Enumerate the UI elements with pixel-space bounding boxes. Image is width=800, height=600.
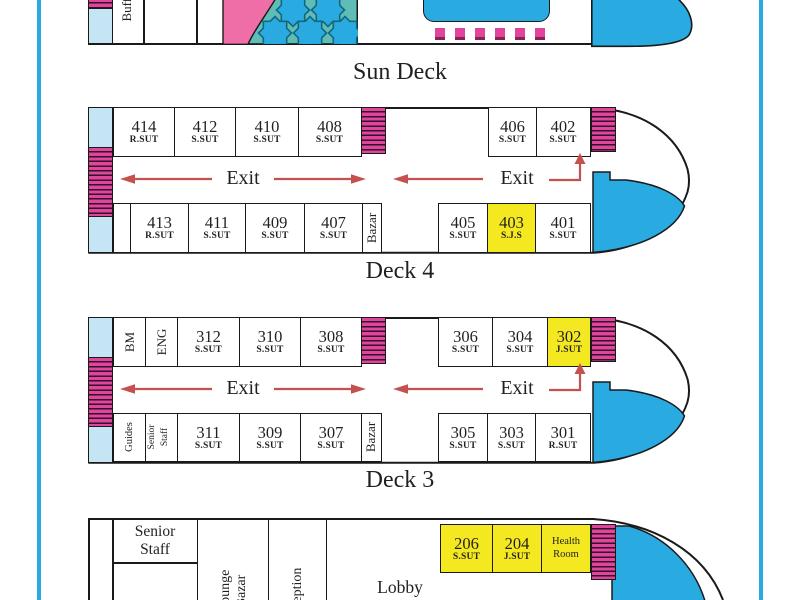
exit-bent-arrow — [549, 152, 593, 184]
exit-label: Exit — [490, 377, 544, 400]
health-room-label: Health Room — [545, 536, 587, 560]
stairs-icon — [88, 0, 113, 9]
room-407: 407 S.SUT — [304, 203, 364, 253]
deco-fin-shape — [222, 0, 278, 45]
exit-arrow-left — [120, 173, 212, 185]
senior-staff-label-line2: Staff — [158, 392, 172, 482]
room-304: 304 S.SUT — [492, 317, 549, 367]
sun-lounger-icon — [535, 28, 545, 40]
stairs-icon — [88, 147, 113, 217]
sun-deck-label: Sun Deck — [300, 59, 500, 86]
sun-lounger-icon — [455, 28, 465, 40]
room-412: 412 S.SUT — [174, 107, 237, 157]
sun-lounger-icon — [495, 28, 505, 40]
room-410: 410 S.SUT — [235, 107, 299, 157]
lounge-bazar-label-line1: Lounge — [219, 546, 233, 600]
wall-line — [113, 562, 198, 564]
room-414: 414 R.SUT — [113, 107, 175, 157]
bm-label: BM — [123, 297, 137, 387]
room-311: 311 S.SUT — [177, 413, 240, 462]
senior-staff-label: Senior Staff — [124, 523, 186, 557]
buffet-room-label: Buffet — [120, 0, 134, 50]
service-cabin — [113, 203, 132, 253]
room-406: 406 S.SUT — [488, 107, 537, 157]
stairs-icon — [361, 317, 386, 364]
room-405: 405 S.SUT — [438, 203, 488, 253]
stairs-icon — [361, 107, 386, 154]
room-402: 402 S.SUT — [536, 107, 591, 157]
room-409: 409 S.SUT — [245, 203, 305, 253]
reception-label: Reception — [291, 551, 305, 600]
room-312: 312 S.SUT — [177, 317, 240, 367]
room-301: 301 R.SUT — [535, 413, 591, 462]
room-206-highlighted: 206 S.SUT — [440, 524, 493, 573]
eng-label: ENG — [155, 297, 169, 387]
room-403-highlighted: 403 S.J.S — [487, 203, 537, 253]
sun-lounger-icon — [475, 28, 485, 40]
exit-label: Exit — [214, 167, 272, 190]
guides-label: Guides — [123, 392, 137, 482]
wall-line — [268, 519, 270, 600]
room-308: 308 S.SUT — [300, 317, 362, 367]
sun-lounger-icon — [435, 28, 445, 40]
deck-4-label: Deck 4 — [300, 258, 500, 285]
room-204-highlighted: 204 J.SUT — [492, 524, 543, 573]
room-411: 411 S.SUT — [188, 203, 247, 253]
health-room-highlighted: Health Room — [541, 524, 591, 573]
exit-arrow-left — [393, 383, 483, 395]
exit-bent-arrow — [549, 362, 593, 394]
wall-line — [196, 0, 198, 44]
exit-label: Exit — [214, 377, 272, 400]
exit-label: Exit — [490, 167, 544, 190]
deck-3-label: Deck 3 — [300, 467, 500, 494]
room-309: 309 S.SUT — [239, 413, 302, 462]
room-413: 413 R.SUT — [130, 203, 189, 253]
exit-arrow-left — [393, 173, 483, 185]
sun-lounger-icon — [515, 28, 525, 40]
senior-staff-label-line1: Senior — [145, 392, 159, 482]
room-408: 408 S.SUT — [298, 107, 362, 157]
room-310: 310 S.SUT — [239, 317, 302, 367]
room-302-highlighted: 302 J.SUT — [547, 317, 591, 367]
lounge-bazar-label-line2: Bazar — [235, 546, 249, 600]
exit-arrow-right — [274, 173, 366, 185]
exit-arrow-right — [274, 383, 366, 395]
wall-line — [326, 519, 328, 600]
ship-deck-plan: Buffet Sun Deck — [0, 0, 800, 600]
stairs-icon — [591, 524, 616, 580]
stairs-icon — [591, 107, 616, 152]
wall-line — [143, 0, 145, 44]
bow-water-shape — [591, 0, 703, 48]
lobby-label: Lobby — [350, 577, 450, 598]
room-303: 303 S.SUT — [487, 413, 537, 462]
room-307: 307 S.SUT — [300, 413, 362, 462]
border-line-left — [37, 0, 41, 600]
room-305: 305 S.SUT — [438, 413, 488, 462]
stairs-icon — [591, 317, 616, 362]
stairs-icon — [88, 357, 113, 427]
swimming-pool — [423, 0, 550, 22]
border-line-right — [759, 0, 763, 600]
room-401: 401 S.SUT — [535, 203, 591, 253]
room-306: 306 S.SUT — [438, 317, 493, 367]
senior-staff-room: Senior Staff — [113, 519, 197, 562]
